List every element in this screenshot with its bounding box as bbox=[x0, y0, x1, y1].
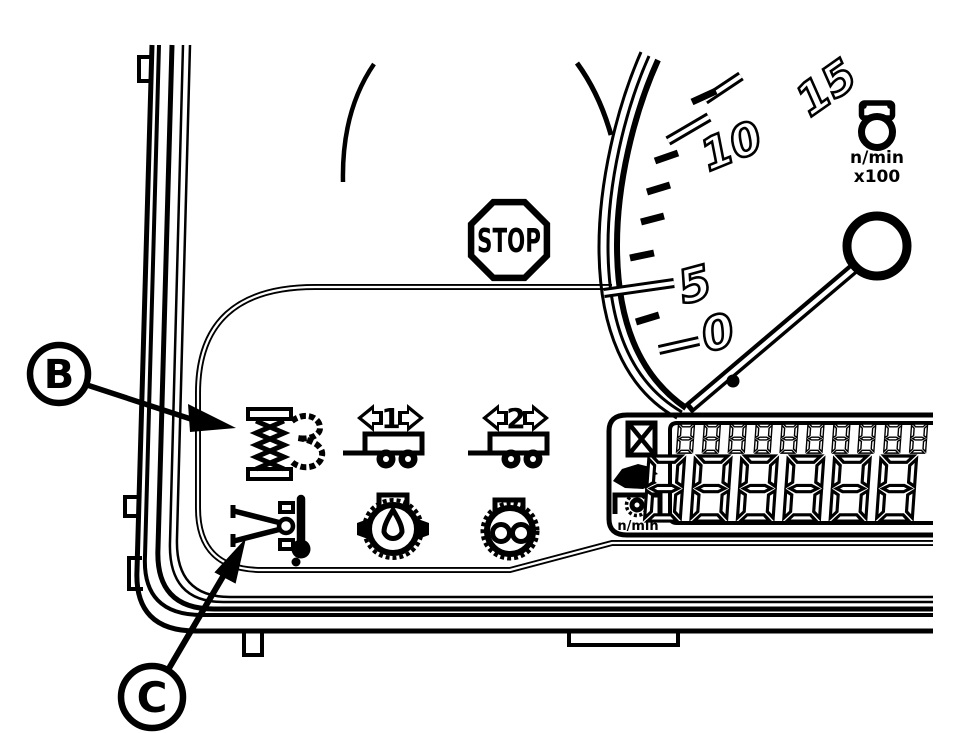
tach-number-5: 5 bbox=[672, 254, 717, 314]
lcd-digit bbox=[676, 424, 694, 453]
hourglass-icon bbox=[628, 423, 655, 455]
bulb-icon bbox=[861, 103, 893, 148]
callout-b-arrowhead bbox=[188, 404, 236, 432]
callout-c-label: C bbox=[137, 673, 168, 722]
transmission-warning-icon bbox=[248, 409, 322, 479]
trailer2-number: 2 bbox=[506, 402, 525, 435]
lcd-digit bbox=[737, 456, 777, 521]
axle-temp-icon bbox=[233, 499, 311, 559]
pivot-dot bbox=[727, 375, 740, 388]
tach-arc bbox=[599, 52, 686, 418]
lcd-digit bbox=[728, 424, 746, 453]
air-pressure-icon bbox=[483, 500, 538, 559]
lcd-digit bbox=[910, 424, 928, 453]
lcd-digit bbox=[806, 424, 824, 453]
trailer2-turn-signal-icon: 2 bbox=[468, 402, 549, 469]
stop-label: STOP bbox=[477, 221, 541, 260]
callout-b: B bbox=[30, 345, 236, 432]
trailer1-turn-signal-icon: 1 bbox=[343, 402, 424, 469]
lcd-digit bbox=[644, 456, 684, 521]
tach-number-0: 0 bbox=[695, 302, 740, 362]
bottom-tab-small bbox=[244, 632, 262, 655]
lcd-digit bbox=[858, 424, 876, 453]
lcd-digit bbox=[780, 424, 798, 453]
callout-b-label: B bbox=[44, 352, 75, 398]
lcd-digit bbox=[876, 456, 916, 521]
speedometer-bezel-arcs bbox=[343, 63, 611, 182]
lcd-display: n/min bbox=[609, 415, 933, 535]
tach-unit-line2: x100 bbox=[854, 167, 901, 187]
rivet-dot bbox=[292, 558, 301, 567]
tachometer: 0 5 10 15 n/min x100 bbox=[599, 50, 907, 418]
tach-unit-line1: n/min bbox=[850, 148, 904, 168]
oil-pressure-icon bbox=[357, 495, 429, 558]
tach-number-15: 15 bbox=[787, 50, 866, 127]
instrument-cluster-diagram: 0 5 10 15 n/min x100 STOP bbox=[0, 0, 979, 733]
needle-hub bbox=[847, 216, 907, 276]
lcd-small-digit-row bbox=[676, 424, 927, 453]
lcd-digit bbox=[884, 424, 902, 453]
lcd-digit bbox=[784, 456, 824, 521]
trailer1-number: 1 bbox=[381, 402, 400, 435]
lcd-digit bbox=[832, 424, 850, 453]
lcd-digit bbox=[702, 424, 720, 453]
lcd-large-digit-row bbox=[644, 456, 916, 521]
lcd-digit bbox=[691, 456, 731, 521]
stop-icon: STOP bbox=[471, 202, 547, 278]
lcd-digit bbox=[830, 456, 870, 521]
lcd-digit bbox=[754, 424, 772, 453]
